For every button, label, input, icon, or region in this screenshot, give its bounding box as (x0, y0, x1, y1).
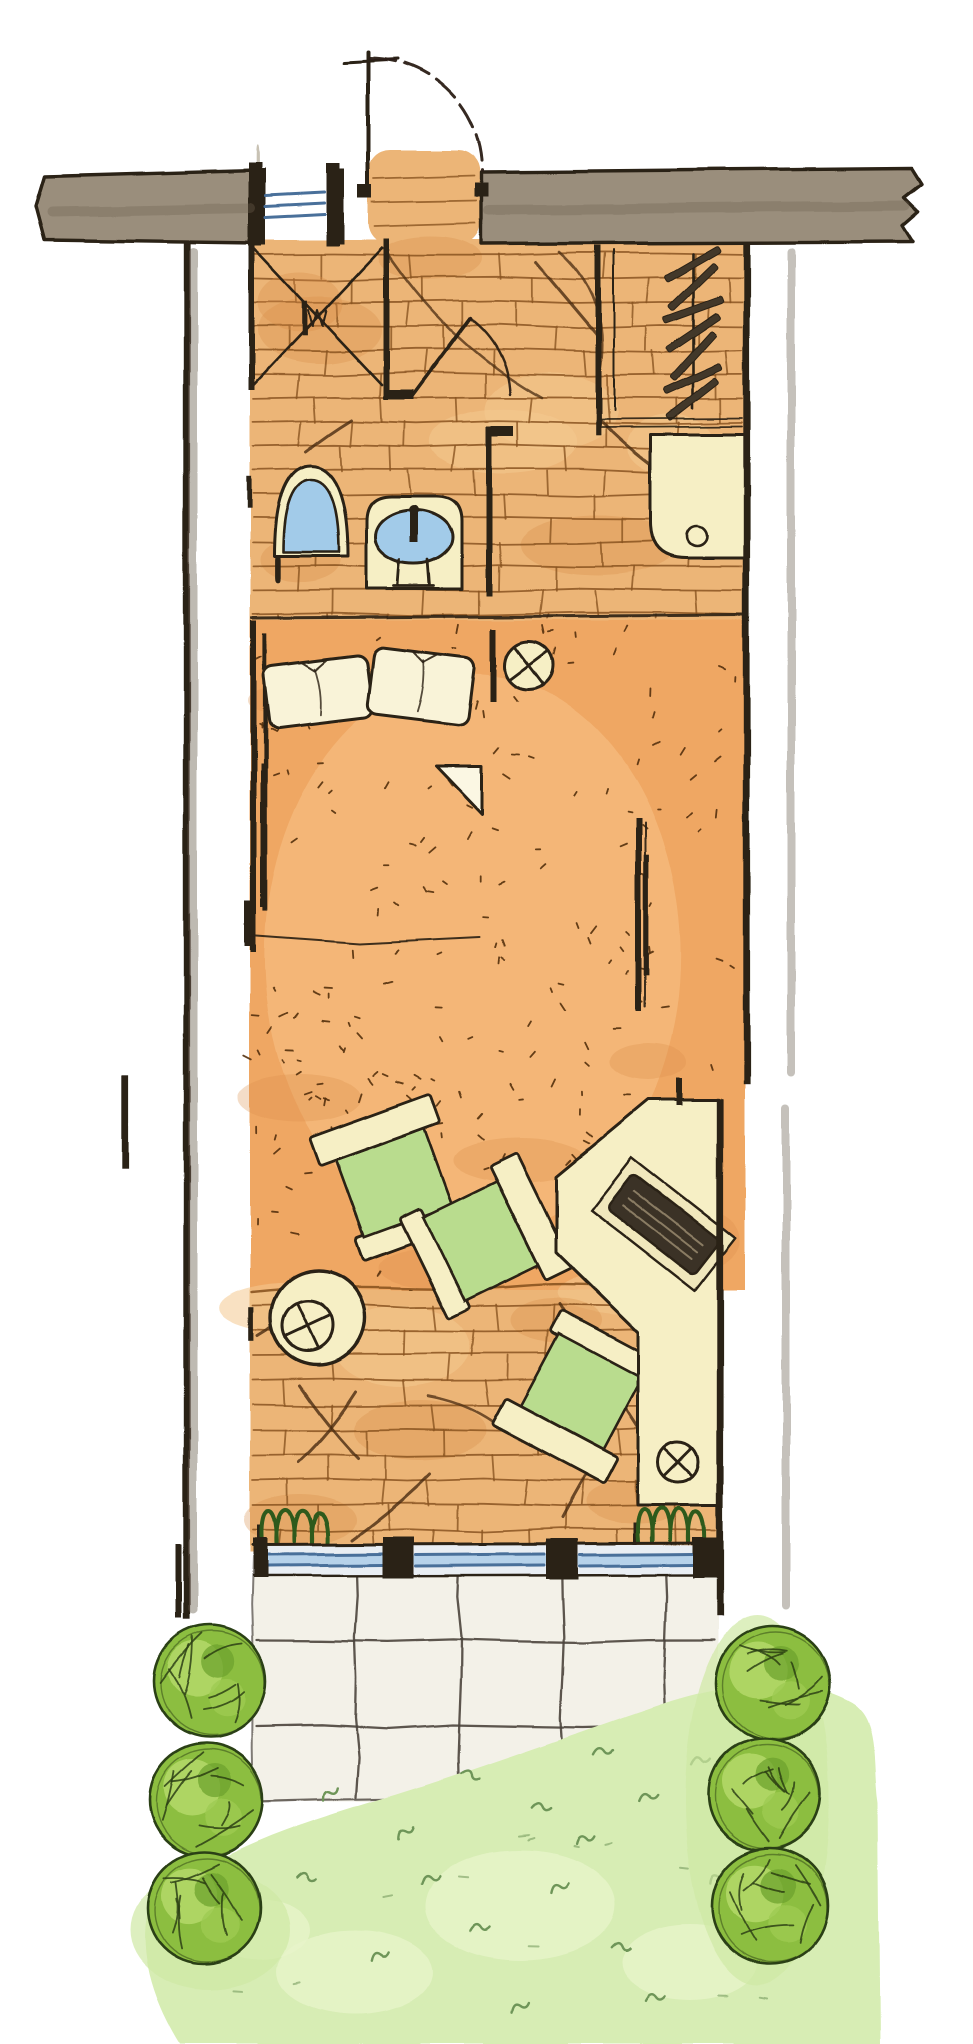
entry-threshold-tile (368, 150, 480, 245)
bush-left-3 (148, 1852, 260, 1964)
sliding-door-top-edge (253, 1543, 718, 1545)
minibar-counter (650, 434, 745, 558)
window-jamb-right (327, 163, 340, 246)
bed-blanket (246, 902, 249, 946)
shower-tray (250, 245, 253, 388)
bed-duvet (262, 766, 265, 906)
sliding-door-bottom-edge (253, 1575, 718, 1576)
bathroom-partition-cap (384, 390, 413, 400)
bush-left-2 (149, 1743, 263, 1857)
wall-right-pier (678, 1080, 681, 1104)
toilet-tank (276, 556, 279, 582)
sliding-door-glow-1 (267, 1559, 383, 1560)
floor-plan-canvas (0, 0, 973, 2044)
wardrobe-cabinet (597, 247, 600, 412)
wall-band-mid (340, 170, 343, 243)
desk-lamp-symbol (658, 1442, 698, 1482)
bathroom-side-wall-cap (486, 426, 513, 436)
door-jamb-mid-2 (546, 1539, 578, 1579)
door-jamb-mid-1 (383, 1537, 415, 1578)
sink-faucet-dot (409, 505, 419, 515)
bush-right-2 (708, 1738, 820, 1850)
table-lamp-symbol (283, 1301, 333, 1351)
bed-pillow-left (262, 654, 373, 730)
floor-plan-page (0, 0, 973, 2044)
wardrobe-shelf (597, 412, 600, 434)
nightstand-lamp-symbol (505, 641, 553, 689)
bush-right-3 (712, 1848, 828, 1964)
shower-drain (303, 302, 306, 334)
nightstand (492, 630, 495, 700)
wall-left (185, 240, 188, 1618)
wall-right-lower (718, 1100, 721, 1615)
bed-pillow-right (366, 646, 476, 726)
bathroom-side-wall (487, 428, 490, 594)
sliding-door-glow-2 (417, 1559, 544, 1560)
door-jamb-right (692, 1537, 718, 1578)
toilet-paper-holder (248, 478, 250, 508)
bush-right-1 (716, 1626, 830, 1740)
wall-left-foot (177, 1545, 180, 1617)
bench-daybed (637, 820, 640, 1010)
wall-right-upper (745, 240, 748, 1082)
sink-faucet-stem (410, 513, 418, 543)
wall-left-pier (123, 1077, 126, 1168)
bush-left-1 (154, 1625, 266, 1737)
entry-door-jamb-dot-right (474, 182, 488, 196)
bed-base (252, 622, 255, 952)
wall-left-nub (250, 1308, 253, 1340)
sliding-door-glow-3 (580, 1559, 692, 1560)
bathroom-partition-wall (385, 240, 388, 398)
door-jamb-left (253, 1538, 267, 1578)
